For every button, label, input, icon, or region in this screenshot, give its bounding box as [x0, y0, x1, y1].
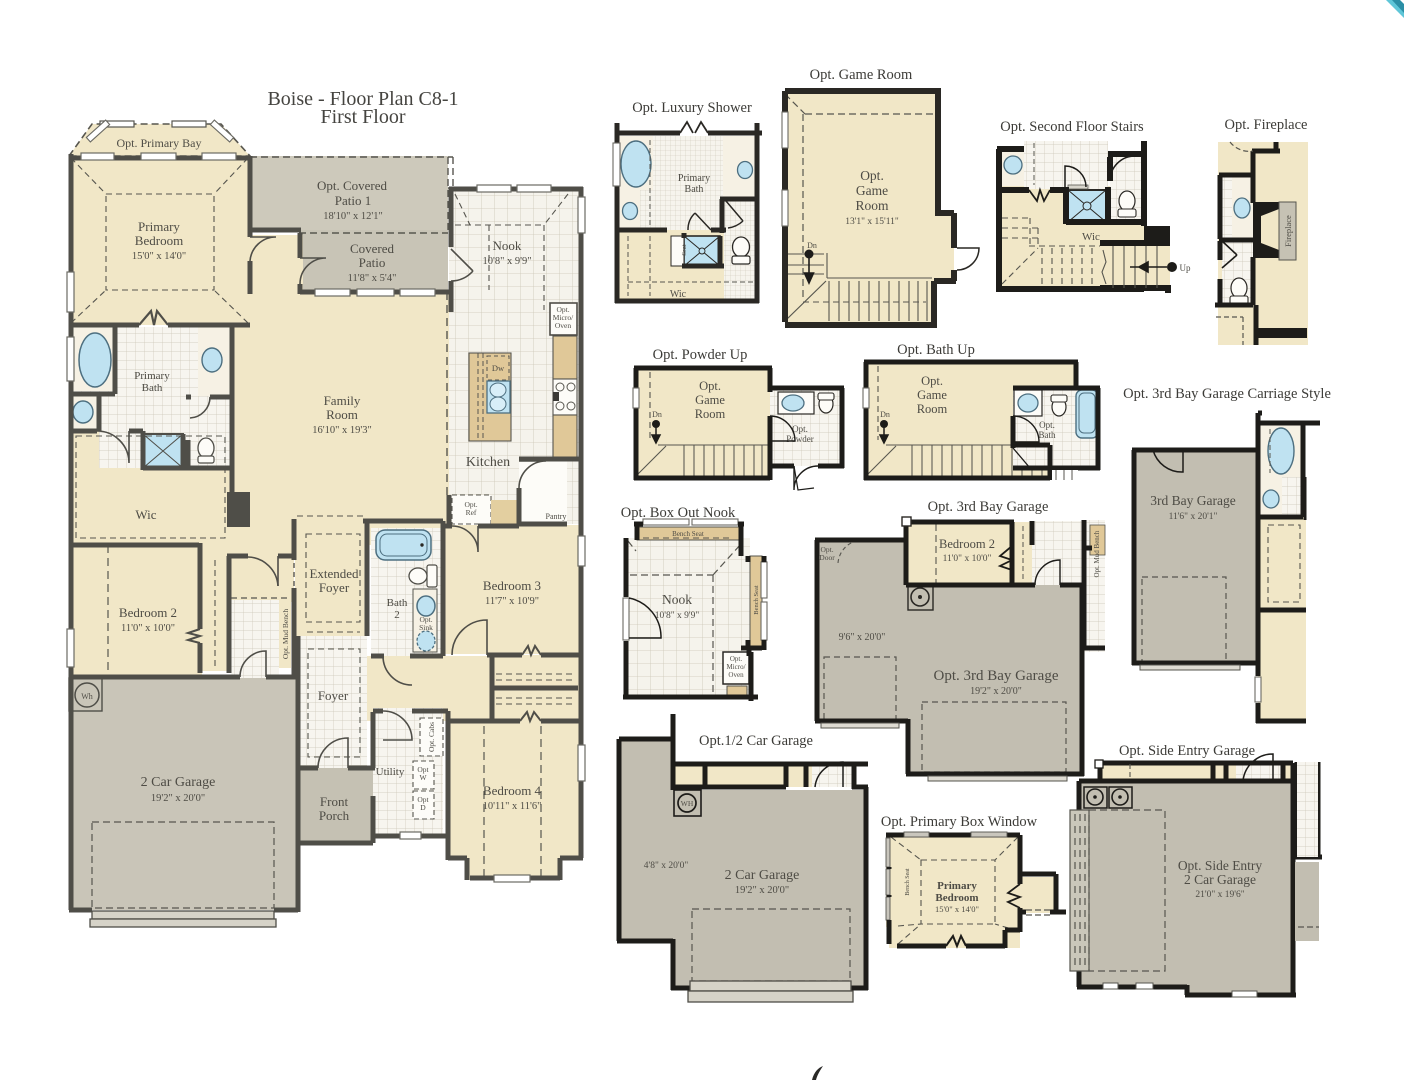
svg-text:Opt. Mud Bench: Opt. Mud Bench	[1093, 530, 1101, 577]
svg-text:15'0" x 14'0": 15'0" x 14'0"	[132, 251, 186, 262]
svg-text:Opt. Cabs: Opt. Cabs	[427, 722, 436, 752]
svg-text:4'8" x 20'0": 4'8" x 20'0"	[644, 861, 689, 871]
svg-text:Ref: Ref	[466, 508, 477, 517]
svg-text:Wic: Wic	[1082, 231, 1100, 243]
svg-text:Wh: Wh	[81, 692, 93, 701]
svg-text:D: D	[420, 803, 426, 812]
svg-text:Nook: Nook	[493, 238, 522, 253]
svg-text:Foyer: Foyer	[318, 688, 349, 703]
svg-text:Patio: Patio	[359, 255, 386, 270]
svg-text:11'0" x 10'0": 11'0" x 10'0"	[943, 554, 992, 564]
svg-text:Opt. Primary Bay: Opt. Primary Bay	[117, 136, 202, 150]
svg-text:Wic: Wic	[135, 507, 156, 522]
svg-text:19'2" x 20'0": 19'2" x 20'0"	[735, 885, 789, 896]
svg-text:Game: Game	[695, 393, 725, 407]
svg-text:Dn: Dn	[880, 410, 890, 419]
svg-text:Kitchen: Kitchen	[466, 455, 510, 470]
svg-text:Bedroom 4: Bedroom 4	[483, 783, 542, 798]
svg-text:Opt. Fireplace: Opt. Fireplace	[1225, 117, 1308, 133]
svg-text:Fireplace: Fireplace	[1283, 215, 1293, 247]
svg-text:Opt.: Opt.	[792, 424, 808, 434]
svg-text:Primary: Primary	[134, 370, 170, 382]
svg-text:Opt. Powder Up: Opt. Powder Up	[653, 347, 748, 363]
svg-text:21'0" x 19'6": 21'0" x 19'6"	[1195, 890, 1244, 900]
svg-text:Bedroom 3: Bedroom 3	[483, 578, 541, 593]
svg-text:Micro/: Micro/	[726, 663, 745, 671]
svg-text:Opt. 3rd Bay Garage: Opt. 3rd Bay Garage	[934, 668, 1059, 684]
svg-text:2 Car Garage: 2 Car Garage	[141, 775, 216, 790]
svg-text:Up: Up	[1180, 263, 1191, 273]
svg-text:Game: Game	[856, 183, 888, 198]
svg-text:Opt. Side Entry Garage: Opt. Side Entry Garage	[1119, 743, 1255, 759]
svg-text:18'10" x 12'1": 18'10" x 12'1"	[323, 211, 383, 222]
svg-text:Bedroom: Bedroom	[935, 892, 978, 904]
svg-text:Game: Game	[917, 388, 947, 402]
svg-text:Opt. Primary Box Window: Opt. Primary Box Window	[881, 814, 1038, 830]
svg-text:Primary: Primary	[138, 219, 180, 234]
svg-text:Opt.1/2 Car Garage: Opt.1/2 Car Garage	[699, 733, 813, 749]
svg-text:Opt.: Opt.	[730, 655, 743, 663]
svg-text:11'6" x 20'1": 11'6" x 20'1"	[1169, 512, 1218, 522]
svg-text:2 Car Garage: 2 Car Garage	[1184, 872, 1256, 887]
svg-text:19'2" x 20'0": 19'2" x 20'0"	[970, 686, 1022, 697]
svg-text:Door: Door	[819, 553, 835, 562]
svg-text:3rd Bay Garage: 3rd Bay Garage	[1150, 493, 1235, 508]
svg-text:2 Car Garage: 2 Car Garage	[725, 868, 800, 883]
svg-text:WH: WH	[681, 799, 694, 808]
svg-text:Room: Room	[855, 198, 889, 213]
svg-text:Opt. Side Entry: Opt. Side Entry	[1178, 858, 1263, 873]
svg-text:Nook: Nook	[662, 592, 692, 607]
svg-text:Room: Room	[695, 407, 726, 421]
svg-text:Bench Seat: Bench Seat	[905, 868, 911, 895]
svg-text:10'8" x 9'9": 10'8" x 9'9"	[482, 256, 531, 267]
svg-text:W: W	[419, 773, 427, 782]
svg-text:Bath: Bath	[142, 382, 163, 394]
svg-text:Primary: Primary	[937, 880, 977, 892]
svg-text:13'1" x 15'11": 13'1" x 15'11"	[845, 217, 899, 227]
svg-text:10'8" x 9'9": 10'8" x 9'9"	[655, 611, 700, 621]
svg-text:Bath: Bath	[1039, 430, 1056, 440]
svg-text:Bath: Bath	[685, 184, 704, 195]
svg-text:9'6" x 20'0": 9'6" x 20'0"	[839, 632, 886, 643]
svg-text:Bedroom: Bedroom	[135, 233, 183, 248]
svg-text:Dn: Dn	[652, 410, 662, 419]
svg-text:Covered: Covered	[350, 241, 395, 256]
svg-text:Dw: Dw	[492, 363, 505, 373]
svg-text:Opt.: Opt.	[921, 374, 943, 388]
svg-text:15'0" x 14'0": 15'0" x 14'0"	[935, 904, 979, 914]
svg-text:10'11" x 11'6": 10'11" x 11'6"	[483, 801, 542, 812]
svg-text:19'2" x 20'0": 19'2" x 20'0"	[151, 793, 205, 804]
svg-text:16'10" x 19'3": 16'10" x 19'3"	[312, 425, 372, 436]
svg-text:Oven: Oven	[728, 671, 744, 679]
svg-text:Bath: Bath	[387, 597, 408, 609]
svg-text:Pantry: Pantry	[546, 512, 567, 521]
svg-text:Opt. Second Floor Stairs: Opt. Second Floor Stairs	[1000, 119, 1144, 135]
svg-text:11'7" x 10'9": 11'7" x 10'9"	[485, 596, 539, 607]
svg-text:Wic: Wic	[670, 289, 687, 300]
svg-text:Room: Room	[917, 402, 948, 416]
svg-text:Foyer: Foyer	[319, 580, 350, 595]
svg-text:Patio 1: Patio 1	[335, 193, 371, 208]
svg-text:2: 2	[394, 609, 400, 621]
svg-text:Opt.: Opt.	[1039, 420, 1055, 430]
svg-text:Bench Seat: Bench Seat	[672, 530, 704, 538]
svg-text:First Floor: First Floor	[320, 106, 405, 128]
svg-text:Opt. 3rd Bay Garage Carriage S: Opt. 3rd Bay Garage Carriage Style	[1123, 386, 1331, 402]
svg-text:Family: Family	[324, 393, 361, 408]
svg-text:Opt. Mud Bench: Opt. Mud Bench	[281, 609, 290, 659]
svg-text:Opt.: Opt.	[860, 168, 884, 183]
svg-text:Front: Front	[320, 794, 349, 809]
svg-text:11'8" x 5'4": 11'8" x 5'4"	[348, 273, 397, 284]
svg-text:Extended: Extended	[309, 566, 359, 581]
svg-text:Opt. Game Room: Opt. Game Room	[810, 67, 913, 83]
svg-text:Sink: Sink	[419, 623, 433, 632]
svg-text:11'0" x 10'0": 11'0" x 10'0"	[121, 623, 175, 634]
svg-text:Opt.: Opt.	[699, 379, 721, 393]
svg-text:Dn: Dn	[807, 241, 817, 250]
svg-text:Oven: Oven	[555, 321, 571, 330]
svg-text:Seat: Seat	[681, 244, 688, 255]
svg-text:Opt. Luxury Shower: Opt. Luxury Shower	[632, 100, 752, 116]
svg-text:Opt. Bath Up: Opt. Bath Up	[897, 342, 975, 358]
svg-text:Primary: Primary	[678, 173, 710, 184]
svg-text:Opt. 3rd Bay Garage: Opt. 3rd Bay Garage	[928, 499, 1049, 515]
svg-text:Utility: Utility	[376, 766, 405, 778]
svg-text:Porch: Porch	[319, 808, 350, 823]
svg-text:Room: Room	[326, 407, 358, 422]
svg-text:Powder: Powder	[786, 434, 814, 444]
svg-text:Bedroom 2: Bedroom 2	[119, 605, 177, 620]
svg-text:Bench Seat: Bench Seat	[753, 585, 760, 615]
svg-text:Opt. Covered: Opt. Covered	[317, 178, 388, 193]
svg-text:Bedroom 2: Bedroom 2	[939, 537, 995, 551]
